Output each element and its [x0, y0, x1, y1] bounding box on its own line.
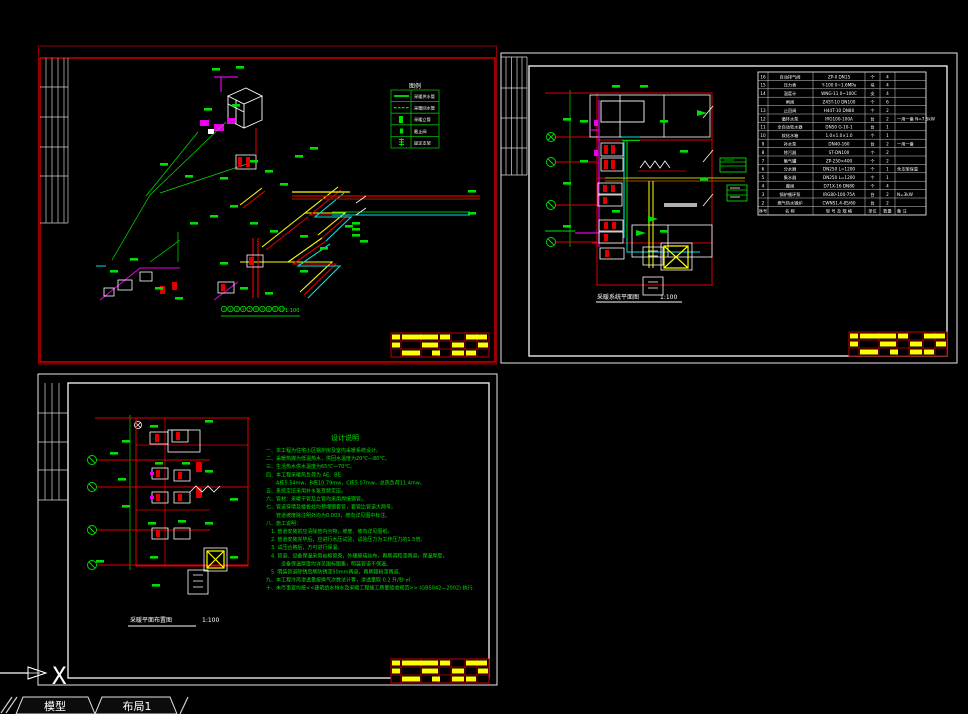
design-notes: 设计说明 一、本工程为住宅小区锅炉房及室内采暖系统设计。 二、采暖热媒为低温热水… — [266, 433, 475, 592]
svg-text:8: 8 — [762, 150, 765, 155]
tab-layout1[interactable]: 布局1 — [95, 697, 177, 714]
design-notes-title: 设计说明 — [331, 433, 359, 442]
svg-text:D71X-16 DN80: D71X-16 DN80 — [823, 184, 854, 189]
svg-text:支: 支 — [870, 90, 875, 97]
svg-text:台: 台 — [870, 199, 874, 206]
svg-text:管道坡度除注明外均为0.003，坡向详见图中标注。: 管道坡度除注明外均为0.003，坡向详见图中标注。 — [266, 512, 390, 519]
svg-text:ZP-II DN15: ZP-II DN15 — [828, 74, 851, 79]
sheetC-signature-strip — [38, 383, 68, 500]
sheetB-plan — [545, 85, 747, 295]
svg-text:H44T-10 DN80: H44T-10 DN80 — [824, 108, 855, 113]
svg-text:5: 5 — [249, 307, 251, 311]
svg-text:个: 个 — [870, 167, 875, 172]
ucs-icon: X — [0, 662, 67, 690]
svg-text:14: 14 — [760, 91, 766, 96]
svg-text:2: 2 — [229, 307, 231, 311]
svg-text:1: 1 — [886, 133, 889, 138]
svg-text:1: 1 — [886, 175, 889, 180]
svg-text:九、本工程冷风渗透量按换气次数法计算，渗透量取 0.2: 九、本工程冷风渗透量按换气次数法计算，渗透量取 0.2 升/秒·㎡. — [266, 577, 412, 584]
svg-text:一用一备 N=7.5kW: 一用一备 N=7.5kW — [897, 115, 935, 122]
svg-text:8: 8 — [268, 307, 270, 311]
svg-text:6: 6 — [255, 307, 257, 311]
sheet-isometric-diagram: 图例 采暖供水管 采暖回水管 采暖立管 截止阀 固定支架 — [39, 46, 497, 364]
equipment-table: 序号 名 称 型 号 及 规 格 单位 数量 备 注 16 自动排气阀 ZP-I… — [758, 72, 935, 215]
svg-text:补水泵: 补水泵 — [784, 141, 797, 148]
svg-text:名 称: 名 称 — [785, 208, 795, 215]
svg-text:Y-100 0~1.6MPa: Y-100 0~1.6MPa — [821, 83, 857, 88]
tab-model[interactable]: 模型 — [16, 697, 95, 714]
svg-text:一、本工程为住宅小区锅炉房及室内采暖系统设计。: 一、本工程为住宅小区锅炉房及室内采暖系统设计。 — [266, 447, 381, 454]
svg-text:个: 个 — [870, 158, 875, 163]
svg-text:型 号 及 规 格: 型 号 及 规 格 — [826, 208, 853, 215]
svg-text:2: 2 — [886, 142, 889, 147]
ucs-x-label: X — [52, 662, 67, 690]
svg-text:9: 9 — [274, 307, 276, 311]
svg-text:个: 个 — [870, 74, 875, 79]
svg-text:分水器: 分水器 — [784, 166, 797, 173]
svg-text:三、生活热水供水温度为65℃—70℃。: 三、生活热水供水温度为65℃—70℃。 — [266, 463, 355, 470]
isometric-piping — [96, 66, 480, 300]
svg-text:全自动软水器: 全自动软水器 — [777, 124, 803, 131]
svg-text:台: 台 — [870, 115, 874, 122]
svg-text:6: 6 — [886, 100, 889, 105]
svg-text:6: 6 — [762, 167, 765, 172]
svg-text:A栋5.54mw，B栋10.79mw，C栋5.07mw，总热: A栋5.54mw，B栋10.79mw，C栋5.07mw，总热负荷11.4mw。 — [266, 479, 425, 486]
svg-text:锅炉循环泵: 锅炉循环泵 — [780, 191, 801, 198]
legend-title: 图例 — [409, 82, 421, 90]
svg-text:台: 台 — [870, 124, 874, 131]
svg-text:七、管道穿墙及楼板处均预埋钢套管，套管比管道大两号。: 七、管道穿墙及楼板处均预埋钢套管，套管比管道大两号。 — [266, 504, 396, 511]
svg-text:15: 15 — [760, 83, 766, 88]
svg-text:ZP-250×400: ZP-250×400 — [826, 158, 853, 163]
svg-text:5: 5 — [762, 175, 765, 180]
sheetA-titleblock — [391, 333, 489, 357]
svg-text:个: 个 — [870, 133, 875, 138]
svg-text:个: 个 — [870, 175, 875, 180]
svg-text:3: 3 — [236, 307, 238, 311]
legend-label: 采暖立管 — [414, 116, 431, 123]
svg-text:10: 10 — [760, 133, 766, 138]
svg-text:16: 16 — [760, 74, 766, 79]
svg-text:除污器: 除污器 — [784, 149, 797, 156]
svg-text:7: 7 — [762, 158, 765, 163]
svg-text:块: 块 — [870, 82, 875, 89]
svg-text:模型: 模型 — [44, 699, 66, 713]
svg-text:个: 个 — [870, 150, 875, 155]
sheetB-drawing-title: 采暖系统平面图 1:100 — [596, 293, 682, 302]
layout-tab-bar: 模型 布局1 — [1, 697, 188, 714]
svg-text:数量: 数量 — [883, 208, 891, 215]
sheetC-scale: 1:100 — [202, 617, 219, 624]
sheetA-scale: 1:100 — [285, 308, 299, 314]
cad-canvas: 图例 采暖供水管 采暖回水管 采暖立管 截止阀 固定支架 — [0, 0, 968, 714]
svg-text:Z45T-10 DN100: Z45T-10 DN100 — [823, 100, 856, 105]
svg-text:集气罐: 集气罐 — [784, 157, 797, 164]
svg-text:1: 1 — [886, 125, 889, 130]
sheetC-drawing-title: 采暖平面布置图 1:100 — [128, 616, 219, 626]
svg-text:2: 2 — [886, 158, 889, 163]
svg-text:4. 管道、设备保温采用岩棉管壳，外缠玻璃丝布，再刷调和漆两: 4. 管道、设备保温采用岩棉管壳，外缠玻璃丝布，再刷调和漆两道，保温厚度， — [266, 552, 447, 559]
svg-text:闸阀: 闸阀 — [786, 99, 794, 106]
svg-text:12: 12 — [760, 116, 766, 121]
svg-text:2: 2 — [886, 200, 889, 205]
svg-text:五、系统定压采用补水泵变频定压。: 五、系统定压采用补水泵变频定压。 — [266, 488, 346, 495]
svg-text:DN250 L=1200: DN250 L=1200 — [823, 167, 856, 172]
sheetC-titleblock — [391, 659, 489, 683]
svg-text:一用一备: 一用一备 — [897, 141, 915, 148]
sheetB-scale: 1:100 — [660, 294, 677, 301]
svg-text:个: 个 — [870, 108, 875, 113]
svg-text:2: 2 — [886, 192, 889, 197]
legend: 图例 采暖供水管 采暖回水管 采暖立管 截止阀 固定支架 — [391, 82, 439, 148]
svg-text:IRG100-100A: IRG100-100A — [825, 116, 853, 121]
svg-text:1: 1 — [886, 167, 889, 172]
svg-text:DN50 G-10-1: DN50 G-10-1 — [825, 125, 853, 130]
svg-text:温度计: 温度计 — [784, 90, 797, 97]
legend-label: 采暖回水管 — [414, 105, 435, 112]
svg-text:压力表: 压力表 — [784, 82, 797, 89]
svg-text:二、采暖热媒为低温热水，供回水温度为20℃—80℃。: 二、采暖热媒为低温热水，供回水温度为20℃—80℃。 — [266, 455, 390, 462]
svg-text:软化水箱: 软化水箱 — [782, 132, 799, 139]
legend-label: 截止阀 — [414, 128, 427, 135]
svg-text:十、未尽事宜均按<<建筑给水排水及采暖工程施工质量验收规范>: 十、未尽事宜均按<<建筑给水排水及采暖工程施工质量验收规范>> (GB5042—… — [266, 585, 475, 592]
svg-text:2: 2 — [886, 108, 889, 113]
sheetB-signature-strip — [501, 57, 527, 175]
svg-text:备 注: 备 注 — [897, 208, 908, 215]
svg-text:采暖系统平面图: 采暖系统平面图 — [597, 293, 639, 301]
svg-text:八、施工说明：: 八、施工说明： — [266, 520, 301, 527]
svg-text:布局1: 布局1 — [123, 700, 152, 713]
svg-text:四、本工程采暖热负荷为 AE、BE：: 四、本工程采暖热负荷为 AE、BE： — [266, 471, 346, 478]
sheetA-drawing-title: 1:100 1 2 3 4 5 6 7 — [221, 306, 300, 316]
svg-text:11: 11 — [760, 125, 766, 130]
svg-text:台: 台 — [870, 141, 874, 148]
svg-text:10: 10 — [280, 307, 284, 311]
svg-text:N=3kW: N=3kW — [897, 192, 913, 197]
svg-text:2: 2 — [886, 150, 889, 155]
svg-text:3: 3 — [762, 192, 765, 197]
svg-text:自动排气阀: 自动排气阀 — [780, 73, 801, 80]
sheetC-axes — [88, 415, 251, 570]
svg-text:1. 管道安装前应清除管内污物，坡度、坡向详见图纸。: 1. 管道安装前应清除管内污物，坡度、坡向详见图纸。 — [266, 528, 392, 535]
svg-text:WNG-11 0~100C: WNG-11 0~100C — [821, 91, 857, 96]
svg-text:CWNS1.4-85/60: CWNS1.4-85/60 — [822, 200, 855, 205]
svg-text:止回阀: 止回阀 — [784, 107, 797, 114]
svg-text:集水器: 集水器 — [784, 174, 797, 181]
svg-text:燃气热水锅炉: 燃气热水锅炉 — [777, 199, 802, 206]
legend-label: 采暖供水管 — [414, 93, 435, 100]
svg-text:序号: 序号 — [759, 208, 767, 215]
svg-text:4: 4 — [886, 91, 889, 96]
svg-text:5. 明装管道除锈后刷防锈漆50mm两道，再刷银粉漆两道。: 5. 明装管道除锈后刷防锈漆50mm两道，再刷银粉漆两道。 — [266, 569, 403, 576]
sheet-plan-notes: 设计说明 一、本工程为住宅小区锅炉房及室内采暖系统设计。 二、采暖热媒为低温热水… — [38, 374, 497, 685]
svg-text:六、管材：采暖干管及立管均采用焊接钢管。: 六、管材：采暖干管及立管均采用焊接钢管。 — [266, 496, 366, 503]
svg-text:2. 管道安装完毕后，应进行水压试验，试验压力为工作压力的1: 2. 管道安装完毕后，应进行水压试验，试验压力为工作压力的1.5倍。 — [266, 536, 425, 543]
svg-text:循环水泵: 循环水泵 — [782, 115, 799, 122]
svg-text:3. 试压合格后，方可进行保温。: 3. 试压合格后，方可进行保温。 — [266, 544, 342, 551]
svg-text:含支架保温: 含支架保温 — [897, 166, 919, 173]
svg-text:台: 台 — [870, 191, 874, 198]
svg-text:4: 4 — [762, 184, 765, 189]
svg-text:9: 9 — [762, 142, 765, 147]
svg-text:4: 4 — [886, 74, 889, 79]
svg-text:7: 7 — [261, 307, 263, 311]
svg-text:蝶阀: 蝶阀 — [786, 183, 794, 190]
svg-text:4: 4 — [886, 184, 889, 189]
svg-text:13: 13 — [760, 108, 766, 113]
table-header-row: 序号 名 称 型 号 及 规 格 单位 数量 备 注 — [759, 208, 908, 215]
svg-text:1.0×1.0×1.0: 1.0×1.0×1.0 — [826, 133, 853, 138]
svg-text:2: 2 — [762, 200, 765, 205]
svg-text:DN250 L=1200: DN250 L=1200 — [823, 175, 856, 180]
svg-text:1: 1 — [223, 307, 225, 311]
svg-text:DN40-160: DN40-160 — [828, 142, 850, 147]
svg-text:IRG80-100-75A: IRG80-100-75A — [823, 192, 855, 197]
svg-text:个: 个 — [870, 100, 875, 105]
svg-text:设备保温厚度均详见国标图集，明装管道不保温。: 设备保温厚度均详见国标图集，明装管道不保温。 — [266, 560, 391, 567]
svg-text:4: 4 — [242, 307, 244, 311]
sheetB-titleblock — [849, 332, 947, 356]
svg-text:4: 4 — [886, 83, 889, 88]
sheetA-signature-strip — [40, 58, 68, 223]
svg-text:采暖平面布置图: 采暖平面布置图 — [130, 616, 172, 624]
svg-text:2: 2 — [886, 116, 889, 121]
sheetB-axes — [545, 90, 712, 247]
sheet-heating-plan: 序号 名 称 型 号 及 规 格 单位 数量 备 注 16 自动排气阀 ZP-I… — [501, 53, 957, 363]
svg-text:单位: 单位 — [868, 208, 876, 215]
svg-text:ST-DN100: ST-DN100 — [829, 150, 850, 155]
sheetC-plan — [96, 418, 248, 594]
legend-label: 固定支架 — [414, 139, 431, 146]
svg-text:个: 个 — [870, 184, 875, 189]
